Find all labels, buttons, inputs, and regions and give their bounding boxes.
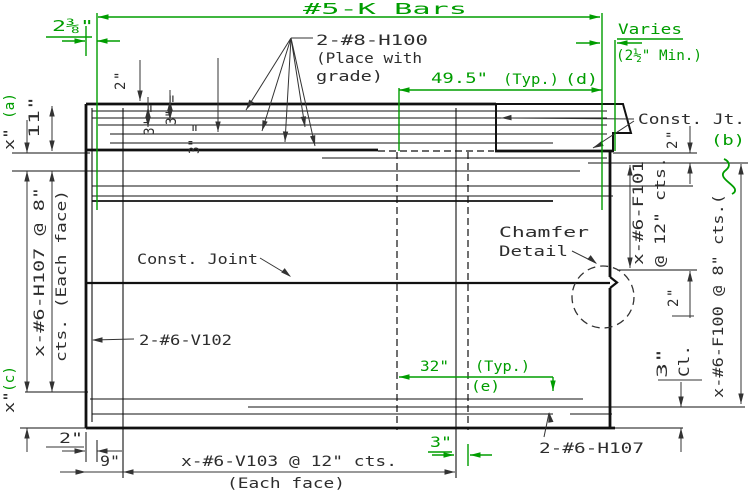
ref-a-label: (a) xyxy=(2,93,18,119)
dim-495-typ-label: (Typ.) xyxy=(503,72,559,88)
h107-left-label-line2: cts. (Each face) xyxy=(54,190,70,362)
extension-lines xyxy=(12,153,697,462)
eq-3-label-3: 3" = xyxy=(187,124,203,154)
drawing-canvas: #5-K Bars 2⅜" 2-#8-H100 (Place with grad… xyxy=(0,0,750,496)
const-jt-ref-label: (b) xyxy=(711,133,745,149)
k-bars-label: #5-K Bars xyxy=(303,0,467,18)
f101-label-line2: @ 12" cts. xyxy=(653,157,669,267)
dim-9-label: 9" xyxy=(100,454,120,470)
dim-495-ref-label: (d) xyxy=(565,72,598,88)
dim-32-typ-label: (Typ.) xyxy=(475,359,530,375)
h100-label-line1: 2-#8-H100 xyxy=(316,33,428,49)
dim-3-bottom-label: 3" xyxy=(430,435,452,451)
varies-label: Varies xyxy=(618,22,682,38)
dim-x-bottom-label: x" xyxy=(2,391,18,413)
const-jt-label: Const. Jt. xyxy=(638,112,745,128)
h107-bottom-label: 2-#6-H107 xyxy=(539,441,644,457)
corner-offset-label: 2⅜" xyxy=(52,17,94,35)
dim-495-label: 49.5" xyxy=(431,71,488,87)
cl-label: Cl. xyxy=(677,345,693,377)
const-joint-label: Const. Joint xyxy=(137,252,258,268)
f100-label: x-#6-F100 @ 8" cts.( xyxy=(711,194,727,398)
v103-label: x-#6-V103 @ 12" cts. xyxy=(181,454,397,470)
dim-11-label: 11" xyxy=(27,96,43,138)
h107-left-label-line1: x-#6-H107 @ 8" xyxy=(32,187,48,357)
v103-each-face-label: (Each face) xyxy=(227,476,345,492)
break-symbol xyxy=(723,159,735,194)
h100-label-line3: grade) xyxy=(316,69,383,85)
eq-3-label-2: 3" = xyxy=(164,95,180,125)
dim-32-ref-label: (e) xyxy=(471,379,500,395)
f101-label-line1: x-#6-F101 xyxy=(631,161,647,265)
dim-32-label: 32" xyxy=(420,359,449,375)
dim-2-bottom-left-label: 2" xyxy=(59,431,83,447)
chamfer-label-line1: Chamfer xyxy=(499,225,589,241)
chamfer-label-line2: Detail xyxy=(499,244,568,260)
ref-c-label: (c) xyxy=(2,366,18,392)
dim-3-cl-label: 3" xyxy=(655,348,671,378)
varies-min-label: (2½" Min.) xyxy=(616,48,702,64)
dim-2-top-label: 2" xyxy=(113,70,129,90)
dim-2-mid-right-label: 2" xyxy=(666,287,682,307)
dim-2-top-right-label: 2" xyxy=(665,129,681,149)
eq-3-label-1: 3" = xyxy=(142,105,158,135)
chamfer-detail-circle xyxy=(572,266,634,328)
dim-x-top-label: x" xyxy=(2,128,18,150)
h100-label-line2: (Place with xyxy=(316,51,422,67)
wall-section-drawing: #5-K Bars 2⅜" 2-#8-H100 (Place with grad… xyxy=(0,0,750,496)
v102-label: 2-#6-V102 xyxy=(139,333,232,349)
